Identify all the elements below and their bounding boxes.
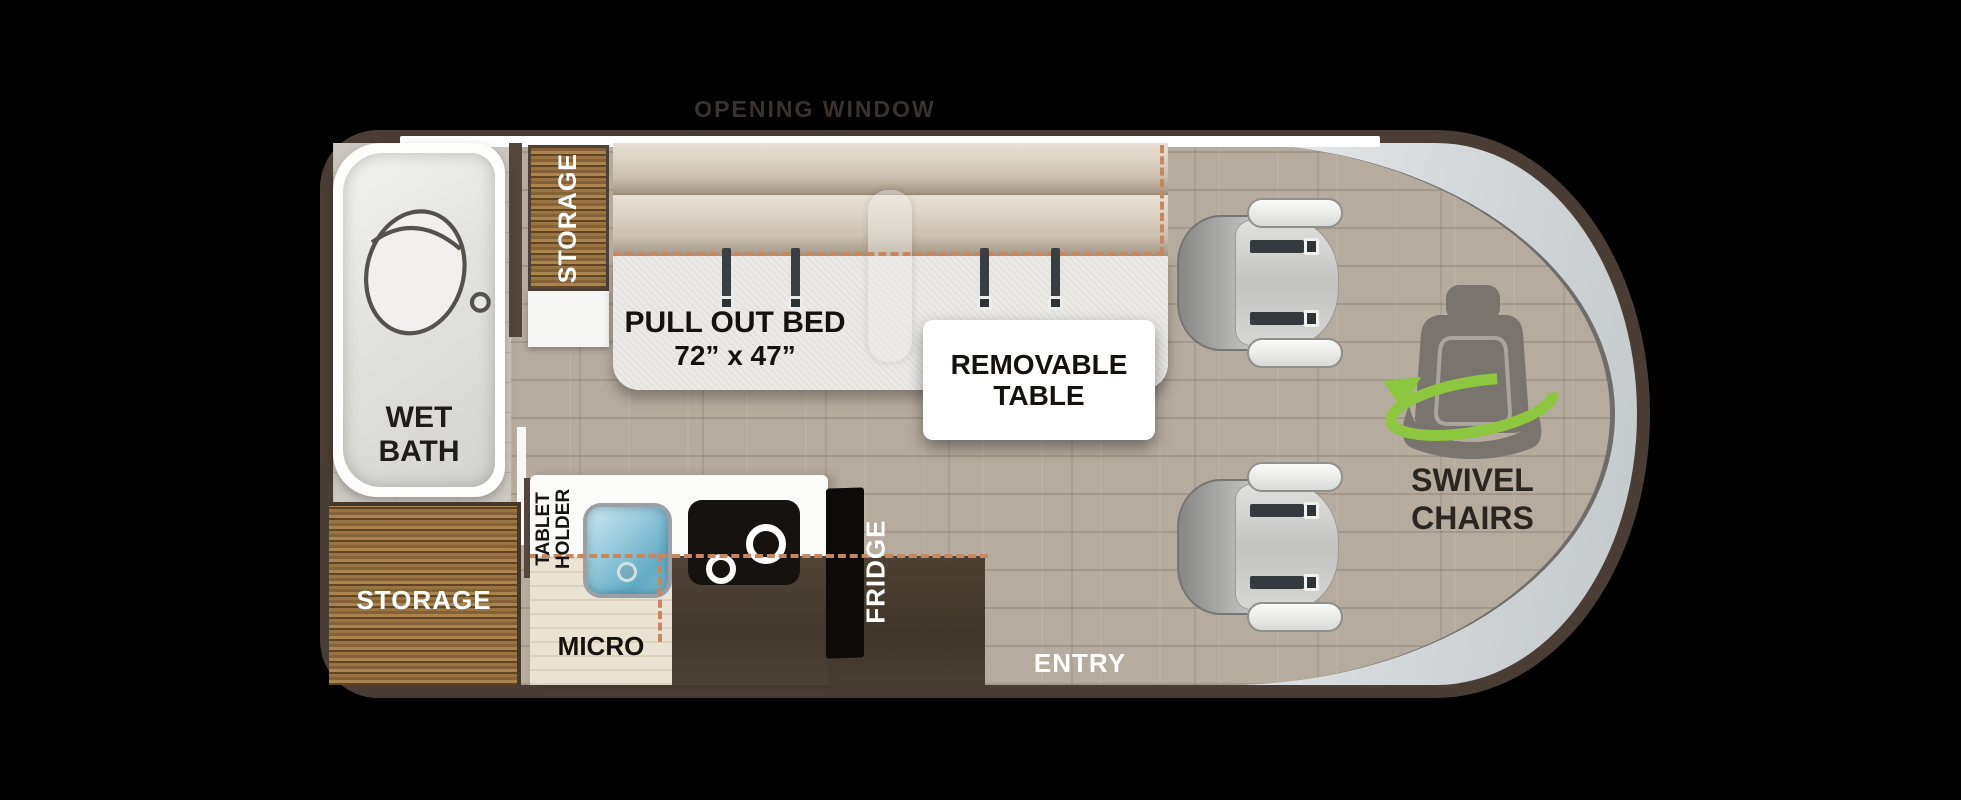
burner-icon — [746, 524, 786, 564]
storage-step — [528, 291, 609, 347]
pull-out-bed-label: PULL OUT BED 72” x 47” — [620, 306, 850, 371]
swivel-seat-icon — [1377, 283, 1567, 473]
bed-fold-line — [613, 252, 1164, 256]
drain-icon — [617, 562, 637, 582]
storage-top-label: STORAGE — [555, 153, 581, 283]
seat-belt-icon — [1250, 504, 1304, 517]
floorplan-canvas: OPENING WINDOW WET BATH STORAGE — [0, 0, 1961, 800]
chair-seat — [1235, 484, 1339, 610]
tablet-holder-label: TABLET HOLDER — [534, 489, 574, 569]
bath-partition-wall — [509, 143, 522, 337]
swivel-chair-rear — [1177, 462, 1345, 632]
counter-extension-line — [530, 554, 988, 558]
opening-window-label: OPENING WINDOW — [640, 97, 990, 123]
bed-edge-line — [1160, 145, 1164, 255]
removable-table-label: REMOVABLE TABLE — [951, 349, 1128, 412]
cooktop — [688, 500, 800, 585]
burner-icon — [706, 554, 736, 584]
counter-extension-line-v — [658, 554, 662, 642]
removable-table: REMOVABLE TABLE — [923, 320, 1155, 440]
swivel-chairs-label: SWIVEL CHAIRS — [1380, 462, 1565, 538]
seat-belt-icon — [1250, 312, 1304, 325]
storage-bottom-label: STORAGE — [334, 586, 514, 615]
chair-armrest — [1247, 198, 1343, 228]
chair-armrest — [1247, 602, 1343, 632]
table-leg-recess — [868, 190, 912, 362]
wet-bath: WET BATH — [333, 143, 505, 497]
seat-belt-icon — [980, 248, 989, 298]
seat-belt-icon — [791, 248, 800, 298]
chair-armrest — [1247, 462, 1343, 492]
chair-seat — [1235, 220, 1339, 346]
chair-armrest — [1247, 338, 1343, 368]
swivel-chair-front — [1177, 198, 1345, 368]
entry-label: ENTRY — [1015, 649, 1145, 678]
fridge-label: FRIDGE — [862, 520, 889, 624]
seat-belt-icon — [1250, 240, 1304, 253]
micro-label: MICRO — [534, 632, 668, 661]
seat-belt-icon — [722, 248, 731, 298]
seat-belt-icon — [1250, 576, 1304, 589]
seat-belt-icon — [1051, 248, 1060, 298]
toilet-icon — [347, 179, 497, 359]
wet-bath-label: WET BATH — [333, 401, 505, 468]
